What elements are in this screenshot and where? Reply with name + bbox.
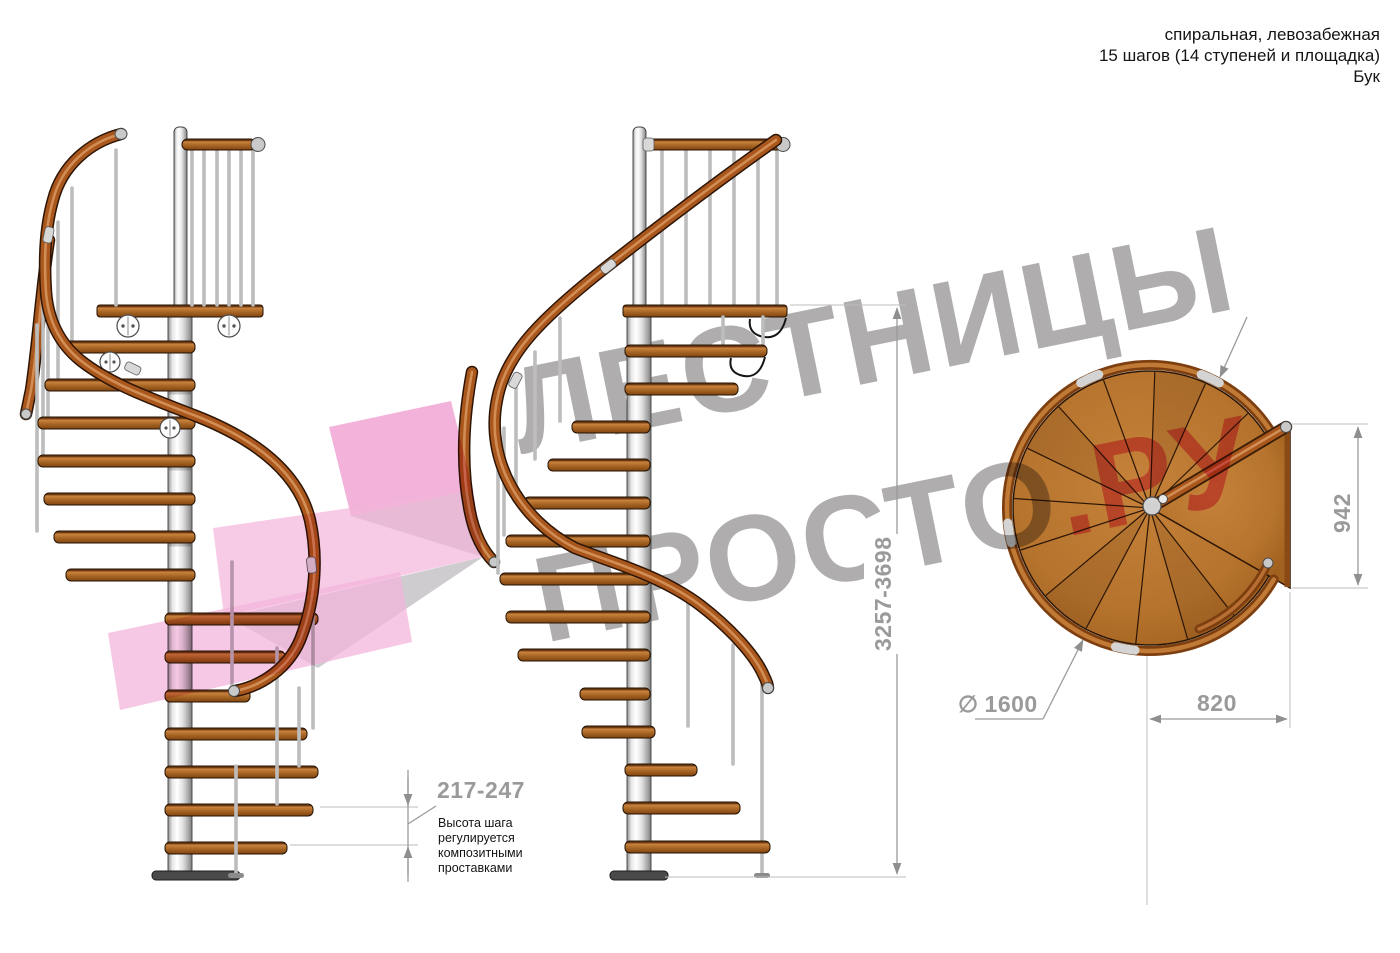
drawing-canvas: 942 820 ∅1600 ЛЕСТНИЦЫ ПРОСТО.РУ — [0, 0, 1400, 953]
title-line-material: Бук — [1099, 66, 1380, 87]
title-line-steps: 15 шагов (14 ступеней и площадка) — [1099, 45, 1380, 66]
title-line-type: спиральная, левозабежная — [1099, 24, 1380, 45]
brand-logo-mark — [0, 0, 1400, 953]
title-block: спиральная, левозабежная 15 шагов (14 ст… — [1099, 24, 1380, 87]
